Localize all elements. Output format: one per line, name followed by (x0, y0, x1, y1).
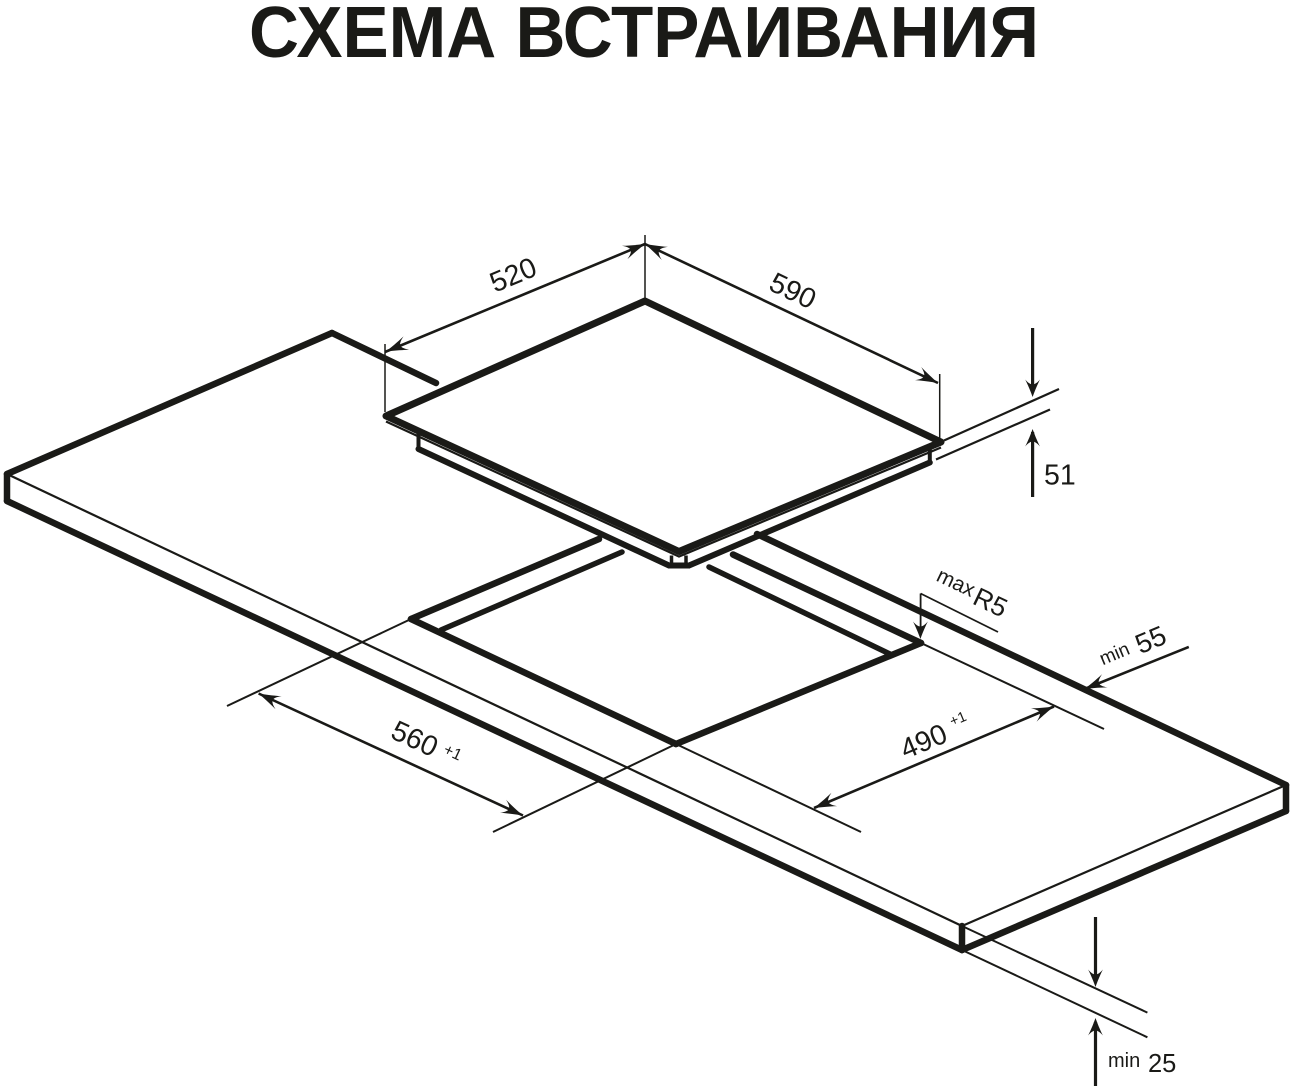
svg-text:490: 490 (896, 718, 952, 766)
svg-text:520: 520 (485, 251, 541, 299)
svg-text:51: 51 (1044, 460, 1076, 492)
svg-text:СХЕМА ВСТРАИВАНИЯ: СХЕМА ВСТРАИВАНИЯ (249, 0, 1039, 73)
svg-text:min: min (1108, 1050, 1140, 1072)
svg-text:55: 55 (1131, 619, 1171, 659)
svg-text:25: 25 (1148, 1050, 1176, 1078)
svg-text:max: max (933, 564, 979, 602)
svg-text:min: min (1097, 639, 1133, 670)
svg-text:590: 590 (764, 267, 821, 316)
svg-text:+1: +1 (441, 741, 465, 764)
svg-text:+1: +1 (948, 709, 969, 730)
